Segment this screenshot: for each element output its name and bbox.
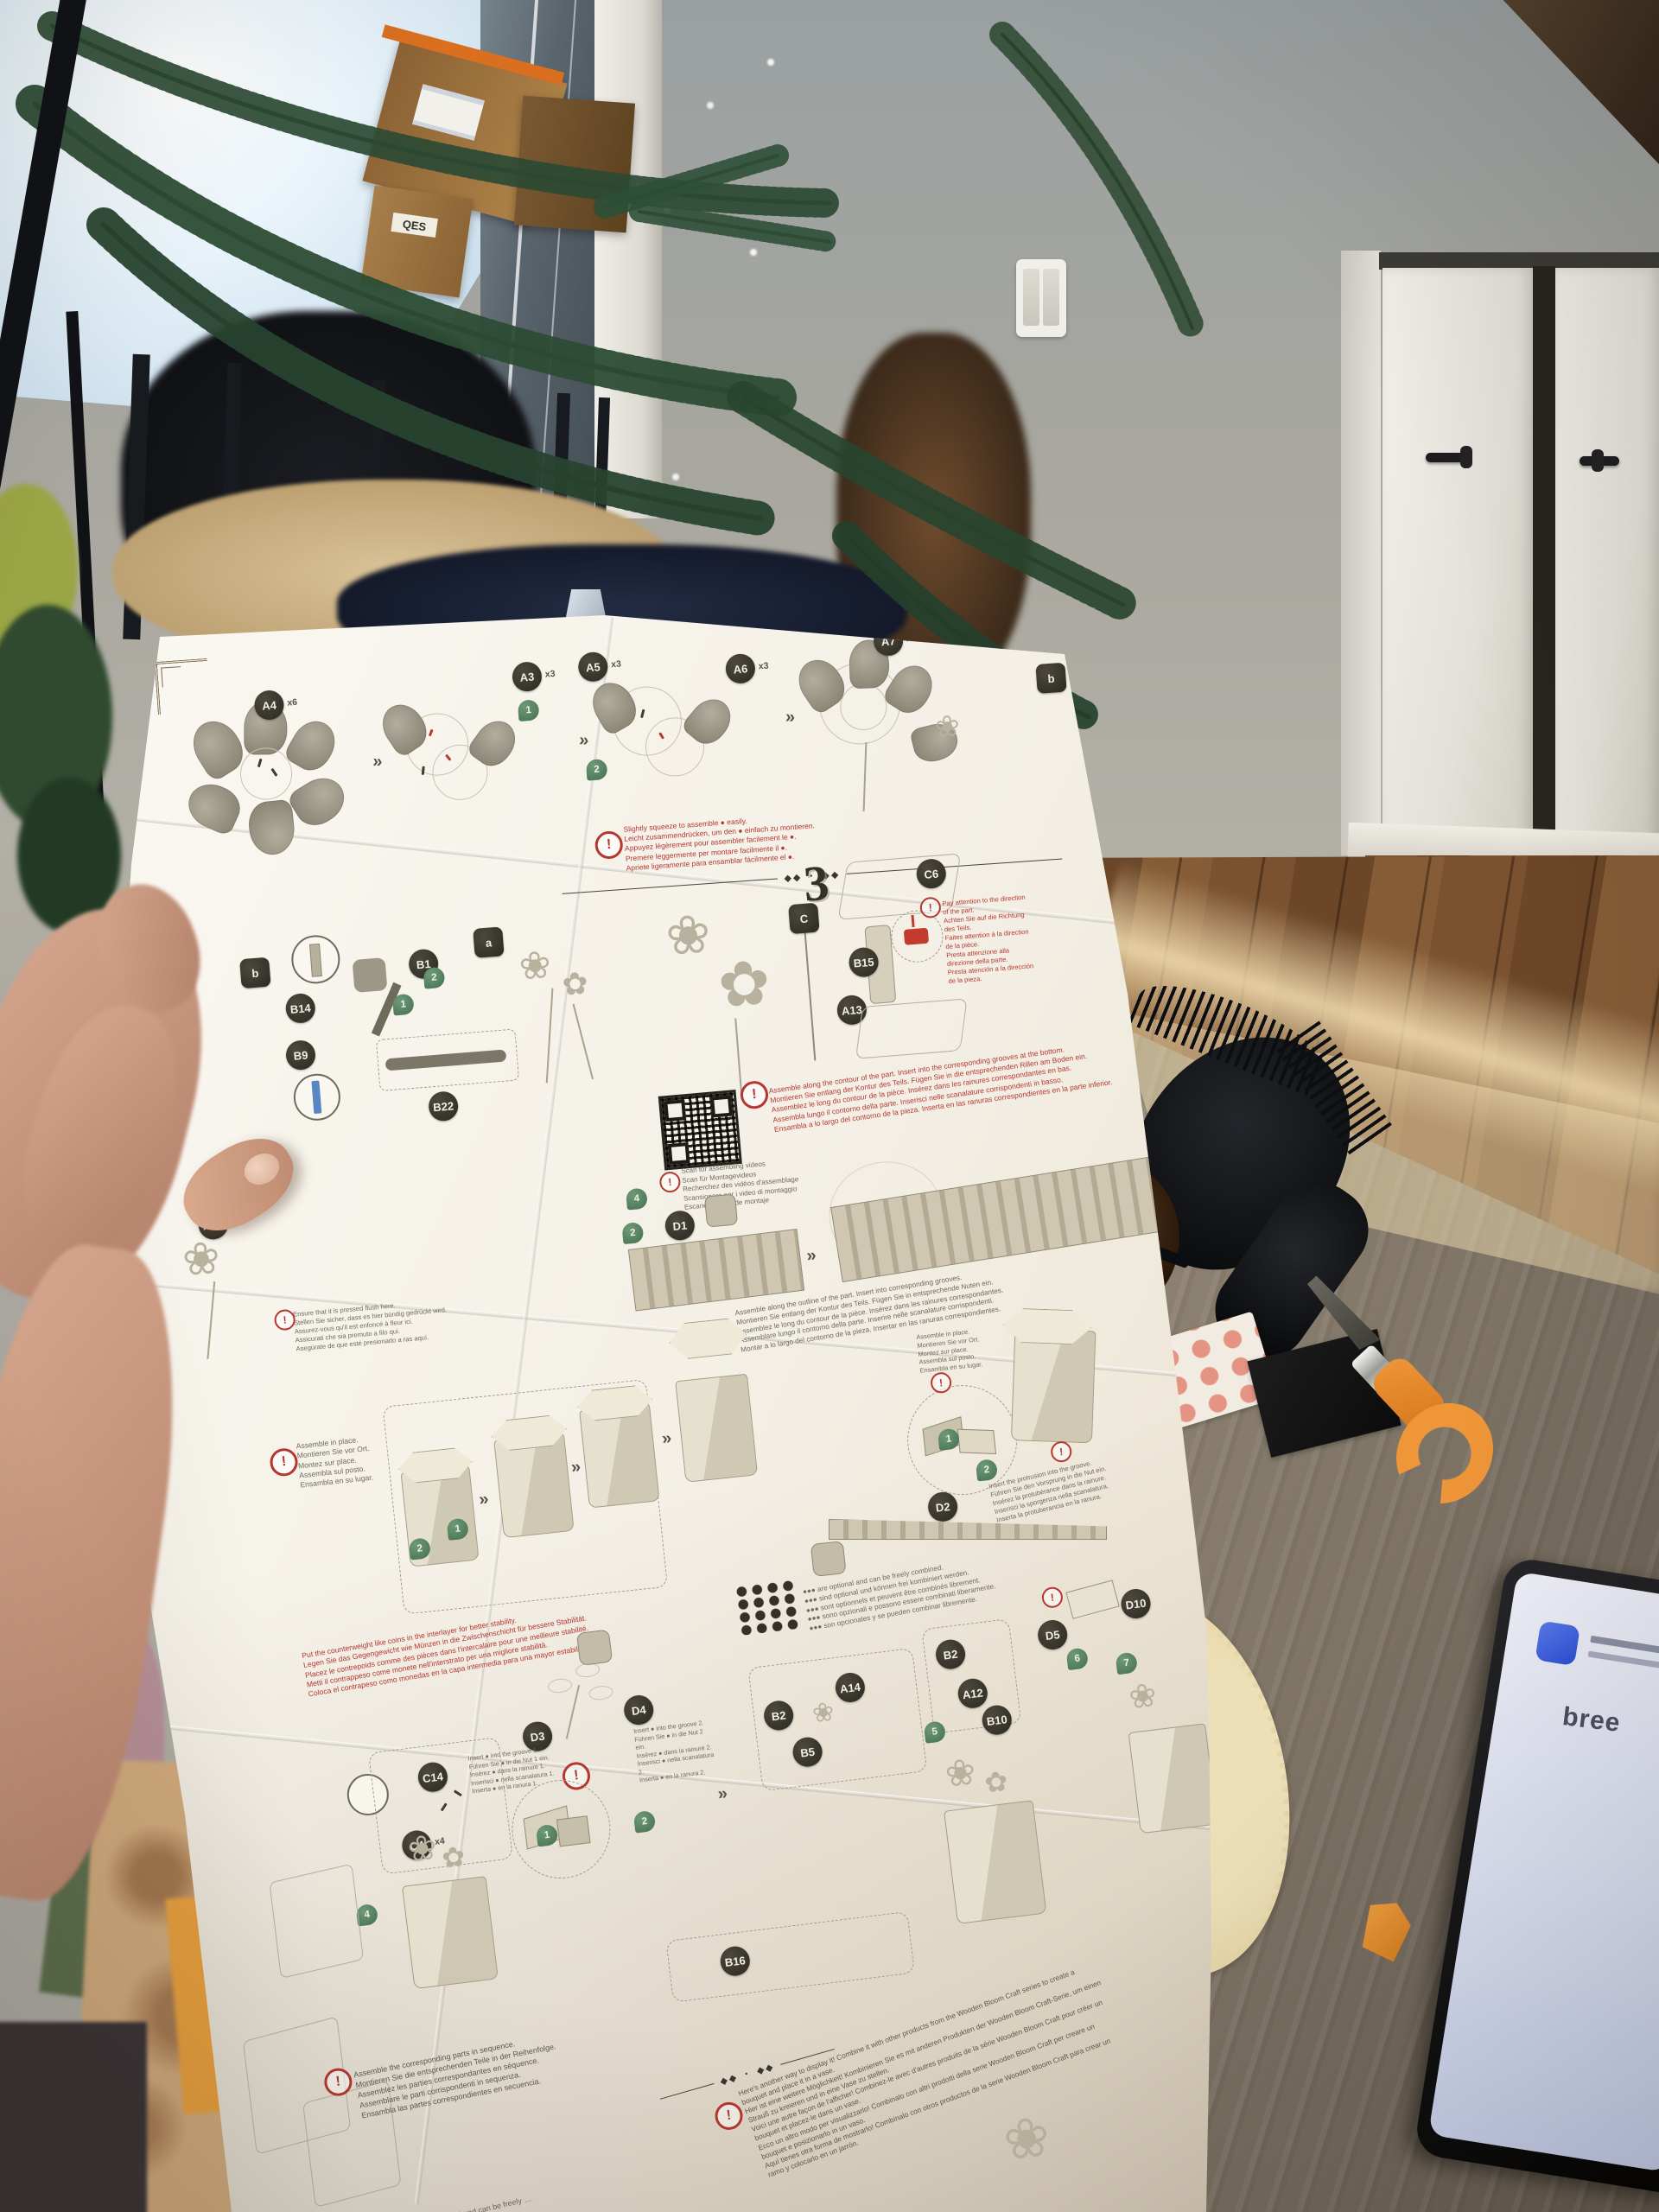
planter-upright <box>1011 1328 1096 1443</box>
flower-sketch-glyph: ❀ <box>518 946 552 987</box>
insert-note-2-text: Insert ● into the groove 2. Führen Sie ●… <box>633 1718 719 1784</box>
next-arrow-icon: » <box>716 1783 728 1804</box>
warning-icon: ! <box>1050 1440 1072 1463</box>
step-marker: 2 <box>586 759 608 781</box>
d2-strip-part <box>829 1519 1107 1540</box>
flower-sketch-glyph: ✿ <box>983 1767 1010 1797</box>
step-marker: 1 <box>392 994 415 1016</box>
display-note-text: Here's another way to display it! Combin… <box>737 1960 1127 2180</box>
part-badge: A6 <box>725 653 756 684</box>
part-badge: B14 <box>284 993 316 1025</box>
letter-badge: b <box>239 957 271 989</box>
warning-icon: ! <box>594 830 624 860</box>
step-marker: 6 <box>1065 1647 1089 1670</box>
scene: QES <box>0 0 1659 2212</box>
instruction-sheet: A4 x6 » A3 x3 1 » <box>112 601 1223 2212</box>
planter-stage-2 <box>493 1433 574 1538</box>
flower-sketch-glyph: ❀ <box>181 1236 222 1284</box>
phone-text-bar-2 <box>1588 1651 1659 1669</box>
step-marker: 1 <box>518 699 540 721</box>
next-arrow-icon: » <box>806 1246 817 1267</box>
part-count: x6 <box>287 697 297 709</box>
flower-sketch-glyph: ❀ <box>943 1753 977 1793</box>
flower-sketch-glyph: ❀ <box>811 1700 836 1728</box>
hex-box-outline <box>269 1864 364 1979</box>
next-arrow-icon: » <box>661 1428 672 1449</box>
protrusion-note-text: Insert the protrusion into the groove. F… <box>988 1436 1199 1525</box>
door-gap <box>1533 266 1555 850</box>
part-badge: D10 <box>1120 1587 1153 1620</box>
warning-icon: ! <box>269 1447 299 1478</box>
door-casing <box>1341 251 1381 855</box>
door-handle-rose-icon <box>1460 446 1472 468</box>
planter-complete <box>675 1374 758 1483</box>
step-marker: 2 <box>621 1222 644 1244</box>
magnifier-detail <box>289 933 341 985</box>
flower-sketch-glyph: ✿ <box>561 968 589 1001</box>
planter-stage-3 <box>579 1403 659 1509</box>
door-handle-rose-icon-2 <box>1592 449 1604 472</box>
door-left <box>1382 268 1533 847</box>
flower-sketch-glyph: ❀ <box>664 908 713 965</box>
dark-corner-fabric <box>0 2022 147 2212</box>
part-badge: A5 <box>577 652 608 683</box>
next-arrow-icon: » <box>372 752 384 772</box>
part-count: x3 <box>544 669 555 680</box>
step-marker: 2 <box>423 967 446 989</box>
part-badge: D2 <box>926 1491 958 1522</box>
detail-circle <box>889 908 945 964</box>
flower-sketch-glyph: ❀ <box>1001 2108 1053 2169</box>
letter-badge: C <box>788 903 820 935</box>
detail-circle-corner <box>506 1775 616 1885</box>
next-arrow-icon: » <box>578 730 589 751</box>
letter-badge: b <box>1035 663 1066 694</box>
phone-app-text: bree <box>1560 1702 1622 1738</box>
part-badge: B9 <box>285 1039 317 1071</box>
flower-sketch-glyph: ❀ <box>406 1830 439 1868</box>
next-arrow-icon: » <box>570 1457 582 1478</box>
optional-dot-grid <box>734 1579 800 1636</box>
flower-sketch-glyph: ❀ <box>934 711 961 742</box>
warning-icon: ! <box>740 1080 770 1110</box>
flower-sketch-glyph: ✿ <box>441 1842 467 1872</box>
square-part <box>353 957 388 993</box>
phone-app-icon <box>1535 1620 1580 1666</box>
part-badge: D5 <box>1036 1618 1069 1651</box>
qr-code <box>658 1090 742 1171</box>
flower-sketch-glyph: ❀ <box>1128 1679 1159 1715</box>
step-marker: 2 <box>633 1810 657 1834</box>
step-marker: 7 <box>1115 1651 1138 1675</box>
door-right <box>1555 268 1659 847</box>
step-marker: 4 <box>626 1187 648 1210</box>
rail-box-outline <box>376 1029 519 1092</box>
part-count: x3 <box>758 661 768 672</box>
part-count: x3 <box>611 659 621 671</box>
part-badge: D1 <box>664 1210 696 1242</box>
ornament-corner <box>155 658 211 715</box>
square-connector <box>704 1194 738 1228</box>
warning-icon: ! <box>714 2101 745 2132</box>
hex-part-outline-2 <box>855 998 968 1058</box>
sequence-note-text: Assemble the corresponding parts in sequ… <box>353 2000 727 2121</box>
flower-sketch-glyph: ✿ <box>715 951 772 1018</box>
part-badge: A3 <box>512 661 543 692</box>
square-connector-2 <box>576 1630 613 1666</box>
next-arrow-icon: » <box>785 708 796 728</box>
next-arrow-icon: » <box>478 1490 489 1510</box>
direction-warning-text: Pay attention to the direction of the pa… <box>942 893 1035 986</box>
door-recess-shadow <box>1379 252 1659 270</box>
column-divider <box>803 914 816 1061</box>
warning-icon: ! <box>658 1171 681 1193</box>
part-badge: D4 <box>622 1694 655 1726</box>
letter-badge: a <box>473 926 505 958</box>
